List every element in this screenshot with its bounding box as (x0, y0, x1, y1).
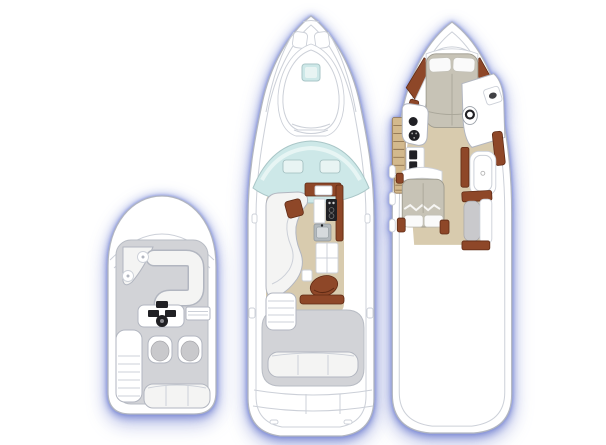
galley-cabinets (316, 243, 338, 273)
bed-wood-trim (440, 220, 449, 234)
instrument-panel (148, 310, 159, 317)
cockpit-bench-seat (268, 352, 358, 377)
side-steps-sunpad (116, 330, 142, 402)
pillow (453, 57, 476, 72)
lower-accommodation-deck-plan (382, 14, 522, 444)
toilet (462, 107, 477, 125)
galley-wood-edge (336, 185, 343, 241)
aft-bench-seat (144, 384, 210, 408)
helm-seat-right (178, 336, 202, 363)
galley-sink (314, 224, 331, 241)
helm-seat-left (148, 336, 172, 363)
windshield-vent (320, 160, 340, 173)
instrument-panel (165, 310, 176, 317)
hull-portlights (389, 165, 395, 232)
pillow (429, 57, 452, 72)
bed-wood-trim (397, 218, 405, 232)
galley-burner (409, 130, 420, 141)
cockpit-wet-bar (300, 295, 344, 304)
foredeck-hatch (302, 64, 320, 81)
bed-wood-trim (396, 173, 403, 183)
pillow (404, 215, 423, 227)
shower-stall (470, 151, 496, 195)
instrument-panel (156, 301, 168, 308)
mid-cabin-sofa (462, 190, 492, 250)
main-deck-plan (236, 8, 386, 444)
companionway-stairs (266, 293, 296, 330)
flybridge-deck-plan (98, 188, 226, 424)
galley-stove (326, 199, 337, 221)
head-wood-bulkhead (461, 147, 469, 187)
galley-sink-round (409, 117, 418, 126)
windshield-vent (283, 160, 303, 173)
yacht-deck-plans-figure (0, 0, 606, 445)
